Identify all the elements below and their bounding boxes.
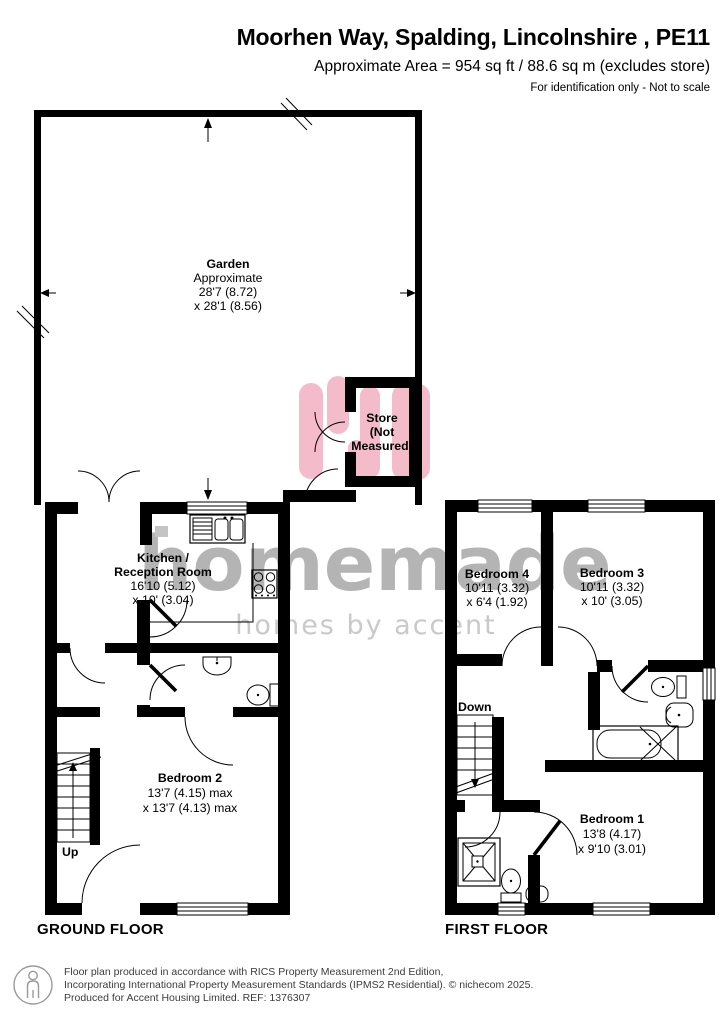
store-label: Store — [366, 411, 398, 425]
footer-text: Floor plan produced in accordance with R… — [64, 966, 533, 1005]
footer-line: Produced for Accent Housing Limited. REF… — [64, 992, 533, 1005]
person-icon — [12, 964, 54, 1006]
window — [187, 502, 247, 514]
garden-dim: x 28'1 (8.56) — [194, 299, 262, 313]
fence-break-mark — [17, 306, 49, 338]
bathroom-sink — [666, 703, 693, 727]
stairs-down-label: Down — [458, 700, 491, 714]
stairs-up-label: Up — [62, 845, 78, 859]
bedroom1-label: Bedroom 1 — [580, 812, 644, 826]
door-arc — [70, 648, 105, 683]
window — [593, 903, 650, 915]
store-label: (Not — [370, 425, 395, 439]
window — [498, 903, 525, 915]
bedroom4-label: Bedroom 4 — [465, 567, 529, 581]
door-arc — [78, 471, 109, 502]
floor-plan-canvas: homemade homes by accent — [0, 0, 724, 1024]
floorplan-page: Moorhen Way, Spalding, Lincolnshire , PE… — [0, 0, 724, 1024]
bedroom4-dim: x 6'4 (1.92) — [466, 595, 527, 609]
footer: Floor plan produced in accordance with R… — [12, 964, 533, 1006]
ground-floor-label: GROUND FLOOR — [37, 921, 164, 938]
brand-logo-shape — [299, 383, 323, 479]
door-leaf — [534, 821, 560, 855]
store-label: Measured) — [351, 439, 413, 453]
window — [478, 500, 532, 512]
garden-dim: 28'7 (8.72) — [199, 285, 257, 299]
door-arc — [109, 471, 140, 502]
bedroom1-dim: x 9'10 (3.01) — [578, 842, 646, 856]
kitchen-dim: x 10' (3.04) — [132, 593, 193, 607]
measure-arrow-up — [204, 118, 212, 142]
door-leaf — [622, 666, 648, 692]
door-leaf — [150, 665, 176, 691]
measure-arrow-down — [204, 478, 212, 500]
measure-arrow-left — [40, 289, 56, 297]
window — [703, 668, 715, 700]
watermark-brand-text: homemade — [138, 519, 611, 608]
shower — [458, 838, 500, 886]
bedroom3-dim: x 10' (3.05) — [581, 594, 642, 608]
bathroom-toilet — [652, 676, 687, 698]
footer-line: Incorporating International Property Mea… — [64, 979, 533, 992]
door-arc — [558, 627, 597, 666]
kitchen-label: Kitchen / — [137, 551, 190, 565]
window — [588, 500, 645, 512]
bedroom3-label: Bedroom 3 — [580, 566, 644, 580]
kitchen-dim: 16'10 (5.12) — [130, 579, 195, 593]
first-floor-label: FIRST FLOOR — [445, 921, 548, 938]
garden-label: Garden — [206, 257, 249, 271]
kitchen-label: Reception Room — [114, 565, 212, 579]
appliance-box — [155, 526, 168, 537]
wc-sink — [203, 657, 231, 675]
bathtub — [593, 726, 678, 762]
watermark-tagline-text: homes by accent — [235, 610, 496, 641]
footer-line: Floor plan produced in accordance with R… — [64, 966, 533, 979]
door-arc — [465, 812, 500, 847]
door-arc — [502, 627, 541, 666]
door-arc — [185, 717, 233, 765]
shower-room-toilet — [501, 869, 521, 902]
bedroom3-dim: 10'11 (3.32) — [580, 580, 644, 594]
door-arc — [82, 845, 140, 903]
window — [177, 903, 248, 915]
bedroom2-dim: x 13'7 (4.13) max — [143, 801, 238, 815]
bedroom1-dim: 13'8 (4.17) — [583, 827, 641, 841]
measure-arrow-right — [400, 289, 416, 297]
bedroom2-label: Bedroom 2 — [158, 771, 222, 785]
garden-dim: Approximate — [193, 271, 262, 285]
bedroom2-dim: 13'7 (4.15) max — [147, 786, 233, 800]
staircase-down — [453, 715, 500, 795]
bedroom4-dim: 10'11 (3.32) — [465, 581, 529, 595]
wc-toilet — [247, 684, 279, 706]
